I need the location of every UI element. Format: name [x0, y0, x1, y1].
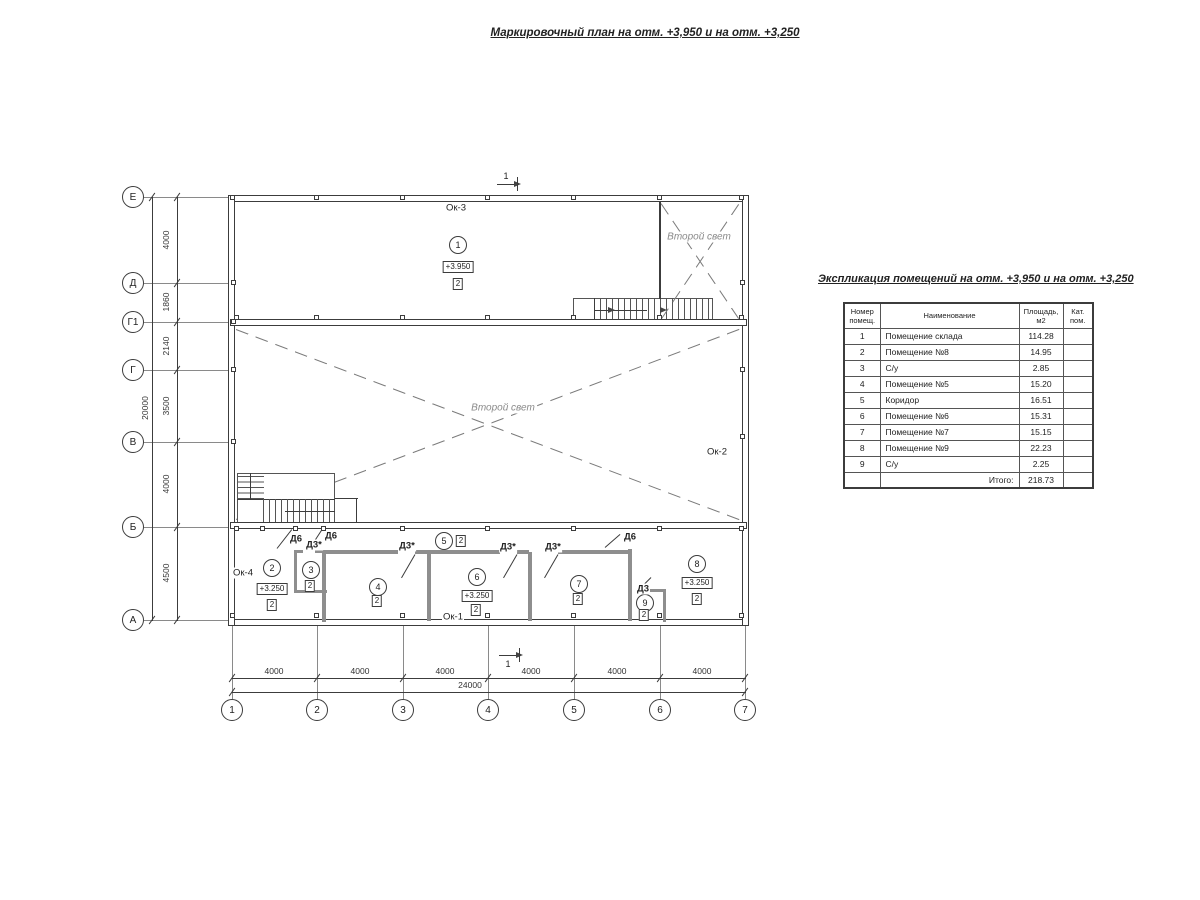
void-label: Второй свет [469, 403, 537, 414]
column-marker [231, 439, 236, 444]
table-cell [1063, 472, 1093, 488]
window-label: Ок-3 [445, 203, 467, 214]
table-cell [1063, 360, 1093, 376]
door-label: Д6 [623, 532, 637, 543]
dim-tick [485, 674, 492, 683]
column-marker [739, 315, 744, 320]
column-marker [230, 195, 235, 200]
axis-circle: Е [122, 186, 144, 208]
door-label: Д3* [499, 542, 517, 553]
table-row: 6Помещение №615.31 [844, 408, 1093, 424]
dim-tick [174, 523, 181, 532]
dim-tick [229, 688, 236, 697]
table-cell [844, 472, 880, 488]
door-label: Д3* [398, 541, 416, 552]
column-marker [400, 315, 405, 320]
category-box: 2 [456, 535, 466, 547]
column-marker [400, 613, 405, 618]
table-cell: 7 [844, 424, 880, 440]
table-title: Экспликация помещений на отм. +3,950 и н… [818, 273, 1108, 285]
table-cell [1063, 344, 1093, 360]
door-label: Д6 [324, 531, 338, 542]
category-box: 2 [573, 593, 583, 605]
table-cell [1063, 456, 1093, 472]
table-cell [1063, 328, 1093, 344]
table-cell: Итого: [880, 472, 1019, 488]
room-number-badge: 3 [302, 561, 320, 579]
axis-circle: Г1 [122, 311, 144, 333]
dim-tick [174, 366, 181, 375]
dim-text: 4000 [608, 666, 627, 676]
column-marker [293, 526, 298, 531]
table-row: 9С/у2.25 [844, 456, 1093, 472]
table-cell: С/у [880, 360, 1019, 376]
column-marker [739, 526, 744, 531]
table-header-cell: Номер помещ. [844, 303, 880, 328]
table-cell: Помещение №5 [880, 376, 1019, 392]
axis-circle: 5 [563, 699, 585, 721]
axis-circle: В [122, 431, 144, 453]
dim-text: 4000 [693, 666, 712, 676]
axis-circle: Г [122, 359, 144, 381]
column-marker [230, 613, 235, 618]
dim-text: 4000 [436, 666, 455, 676]
table-row: 3С/у2.85 [844, 360, 1093, 376]
room-number-badge: 8 [688, 555, 706, 573]
column-marker [657, 613, 662, 618]
column-marker [400, 195, 405, 200]
category-box: 2 [639, 609, 649, 621]
elevation-label: +3.250 [682, 577, 713, 589]
table-cell: Помещение №6 [880, 408, 1019, 424]
room-number-badge: 4 [369, 578, 387, 596]
table-cell: 2.85 [1019, 360, 1063, 376]
table-row: 2Помещение №814.95 [844, 344, 1093, 360]
table-cell: 1 [844, 328, 880, 344]
column-marker [739, 613, 744, 618]
axis-circle: Б [122, 516, 144, 538]
column-marker [740, 367, 745, 372]
table-row: 7Помещение №715.15 [844, 424, 1093, 440]
column-marker [485, 526, 490, 531]
column-marker [657, 526, 662, 531]
dim-tick [174, 193, 181, 202]
table-cell: 16.51 [1019, 392, 1063, 408]
room-number-badge: 6 [468, 568, 486, 586]
category-box: 2 [372, 595, 382, 607]
table-cell [1063, 408, 1093, 424]
table-cell: 15.20 [1019, 376, 1063, 392]
dim-tick [229, 674, 236, 683]
room-number-badge: 5 [435, 532, 453, 550]
column-marker [234, 526, 239, 531]
dim-text: 4000 [351, 666, 370, 676]
table-cell [1063, 392, 1093, 408]
table-cell: 114.28 [1019, 328, 1063, 344]
table-cell: 6 [844, 408, 880, 424]
axis-circle: 7 [734, 699, 756, 721]
table-cell: Помещение №7 [880, 424, 1019, 440]
table-row: 8Помещение №922.23 [844, 440, 1093, 456]
axis-circle: 1 [221, 699, 243, 721]
table-cell: 4 [844, 376, 880, 392]
table-header-cell: Площадь, м2 [1019, 303, 1063, 328]
column-marker [485, 315, 490, 320]
dim-tick [174, 318, 181, 327]
column-marker [740, 434, 745, 439]
dim-tick [400, 674, 407, 683]
section-mark-label: 1 [505, 659, 510, 669]
table-cell: Помещение №8 [880, 344, 1019, 360]
window-label: Ок-4 [232, 568, 254, 579]
category-box: 2 [471, 604, 481, 616]
dim-text: 4000 [265, 666, 284, 676]
window-label: Ок-1 [442, 612, 464, 623]
axis-circle: Д [122, 272, 144, 294]
dim-tick [742, 688, 749, 697]
door-label: Д6 [289, 534, 303, 545]
dim-text: 2140 [161, 337, 171, 356]
window-label: Ок-2 [706, 447, 728, 458]
dim-text: 3500 [161, 397, 171, 416]
dim-text: 4000 [522, 666, 541, 676]
table-cell: 2.25 [1019, 456, 1063, 472]
table-cell: 3 [844, 360, 880, 376]
column-marker [400, 526, 405, 531]
column-marker [571, 613, 576, 618]
table-cell: Помещение склада [880, 328, 1019, 344]
dim-tick [174, 438, 181, 447]
category-box: 2 [692, 593, 702, 605]
column-marker [321, 526, 326, 531]
room-number-badge: 2 [263, 559, 281, 577]
door-label: Д3* [305, 540, 323, 551]
dim-tick [742, 674, 749, 683]
dim-tick [314, 674, 321, 683]
section-mark-label: 1 [503, 171, 508, 181]
table-row: 1Помещение склада114.28 [844, 328, 1093, 344]
dim-tick [657, 674, 664, 683]
drawing-sheet: Маркировочный план на отм. +3,950 и на о… [0, 0, 1200, 900]
table-cell: 15.15 [1019, 424, 1063, 440]
column-marker [260, 526, 265, 531]
table-cell: Помещение №9 [880, 440, 1019, 456]
column-marker [231, 319, 236, 324]
table-row: Итого:218.73 [844, 472, 1093, 488]
table-cell: 22.23 [1019, 440, 1063, 456]
dim-tick [174, 279, 181, 288]
elevation-label: +3.950 [443, 261, 474, 273]
door-label: Д3 [636, 584, 650, 595]
void-label: Второй свет [665, 232, 733, 243]
column-marker [657, 195, 662, 200]
table-cell [1063, 424, 1093, 440]
table-header-cell: Наименование [880, 303, 1019, 328]
table-cell: 2 [844, 344, 880, 360]
dim-text: 20000 [140, 396, 150, 420]
column-marker [231, 367, 236, 372]
dim-text: 24000 [458, 680, 482, 690]
room-number-badge: 1 [449, 236, 467, 254]
table-header-cell: Кат. пом. [1063, 303, 1093, 328]
table-cell [1063, 376, 1093, 392]
elevation-label: +3.250 [257, 583, 288, 595]
table-cell: 218.73 [1019, 472, 1063, 488]
column-marker [740, 280, 745, 285]
category-box: 2 [267, 599, 277, 611]
column-marker [571, 526, 576, 531]
table-cell: С/у [880, 456, 1019, 472]
room-explication-table: Номер помещ.НаименованиеПлощадь, м2Кат. … [843, 302, 1094, 489]
category-box: 2 [453, 278, 463, 290]
dim-text: 1860 [161, 293, 171, 312]
column-marker [485, 195, 490, 200]
table-cell: 14.95 [1019, 344, 1063, 360]
table-cell: 15.31 [1019, 408, 1063, 424]
dim-tick [571, 674, 578, 683]
table-cell: Коридор [880, 392, 1019, 408]
table-row: 4Помещение №515.20 [844, 376, 1093, 392]
column-marker [314, 195, 319, 200]
column-marker [314, 315, 319, 320]
column-marker [314, 613, 319, 618]
table-cell: 8 [844, 440, 880, 456]
axis-circle: 6 [649, 699, 671, 721]
dim-tick [149, 193, 156, 202]
axis-circle: А [122, 609, 144, 631]
door-label: Д3* [544, 542, 562, 553]
table-cell: 9 [844, 456, 880, 472]
column-marker [657, 315, 662, 320]
axis-circle: 2 [306, 699, 328, 721]
column-marker [571, 195, 576, 200]
axis-circle: 3 [392, 699, 414, 721]
column-marker [231, 280, 236, 285]
elevation-label: +3.250 [462, 590, 493, 602]
dim-text: 4000 [161, 475, 171, 494]
column-marker [571, 315, 576, 320]
table-row: 5Коридор16.51 [844, 392, 1093, 408]
column-marker [485, 613, 490, 618]
dim-text: 4000 [161, 231, 171, 250]
category-box: 2 [305, 580, 315, 592]
table-cell: 5 [844, 392, 880, 408]
axis-circle: 4 [477, 699, 499, 721]
table-cell [1063, 440, 1093, 456]
dim-tick [149, 616, 156, 625]
column-marker [739, 195, 744, 200]
dim-text: 4500 [161, 564, 171, 583]
room-number-badge: 7 [570, 575, 588, 593]
dim-tick [174, 616, 181, 625]
